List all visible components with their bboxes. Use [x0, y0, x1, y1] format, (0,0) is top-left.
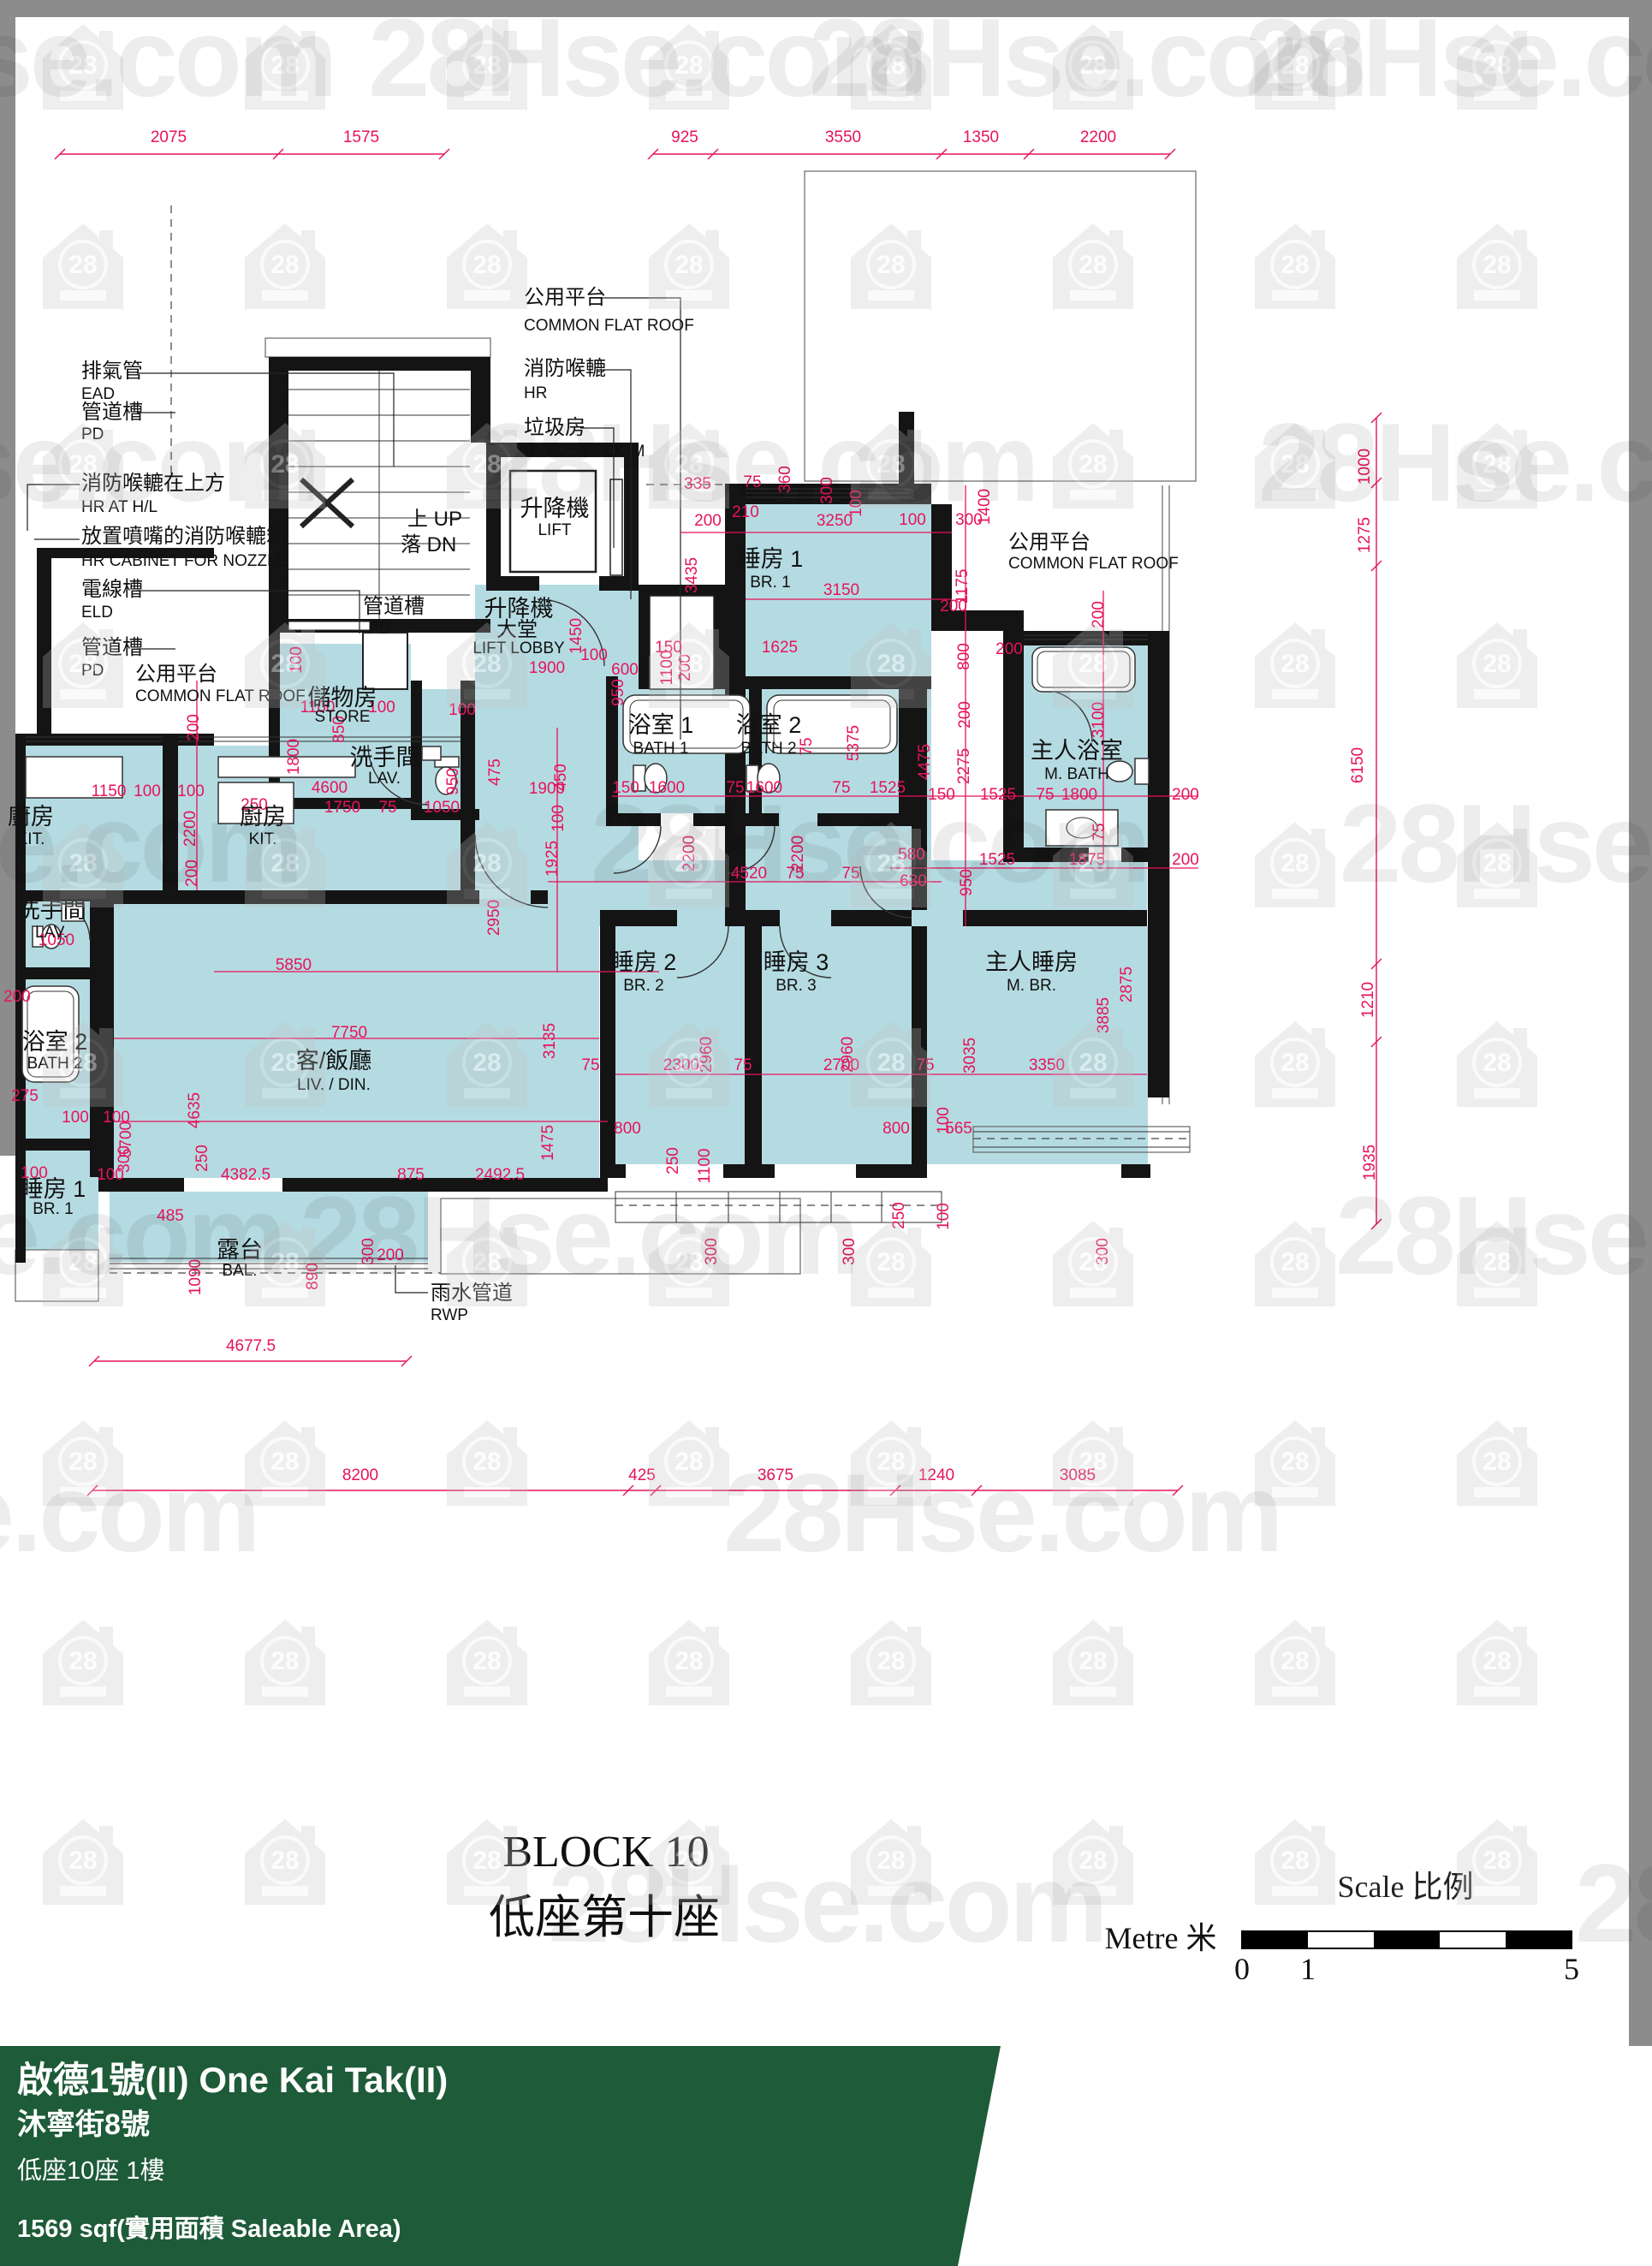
room-zh: 睡房 1: [738, 546, 804, 572]
ann-en: HR CABINET FOR NOZZLE: [81, 552, 287, 570]
dim: 2075: [151, 128, 187, 146]
watermark-icon-number: 28: [1079, 650, 1107, 678]
dim: 75: [378, 799, 396, 817]
sheet-right-strip: [1629, 17, 1652, 2046]
room-zh: 主人浴室: [1031, 738, 1123, 764]
dim: 200: [1172, 851, 1199, 869]
watermark-icon-number: 28: [674, 1647, 703, 1675]
info-banner-green: 啟德1號(II) One Kai Tak(II) 沐寧街8號 低座10座 1樓 …: [0, 2046, 1652, 2266]
room-en: BATH 1: [633, 740, 688, 758]
dim: 75: [734, 1056, 752, 1074]
watermark-icon-number: 28: [270, 1647, 299, 1675]
scale-0: 0: [1234, 1952, 1250, 1986]
watermark-icon-number: 28: [270, 1049, 299, 1077]
watermark-text: 28Hse.com: [1258, 400, 1652, 525]
dim: 2875: [1118, 966, 1136, 1002]
ann-zh: 放置噴嘴的消防喉轆箱: [81, 525, 287, 548]
dim: 250: [193, 1145, 211, 1172]
dim: 100: [62, 1109, 89, 1127]
room-en: BR. 2: [623, 977, 664, 995]
ann-zh: 公用平台: [135, 663, 217, 686]
room-en: STORE: [314, 708, 370, 726]
dim: 1210: [1359, 982, 1377, 1018]
dim: 475: [486, 758, 504, 786]
watermark-icon-number: 28: [1079, 1647, 1107, 1675]
watermark-icon-number: 28: [68, 650, 97, 678]
dim: 3135: [541, 1023, 559, 1059]
dim: 250: [664, 1147, 682, 1175]
watermark-text: 28Hse.com: [0, 781, 300, 906]
watermark-text: 28Hse.com: [591, 781, 1148, 906]
dim: 3035: [961, 1038, 979, 1074]
dim: 275: [11, 1087, 39, 1105]
dim: 925: [671, 128, 698, 146]
watermark-icon-number: 28: [1483, 1847, 1511, 1875]
dim: 200: [956, 701, 974, 729]
watermark-text: 28Hse.com: [1575, 1841, 1652, 1966]
dim: 950: [609, 679, 627, 706]
watermark-icon-number: 28: [877, 1248, 905, 1276]
dim: 1350: [963, 128, 999, 146]
dim: 450: [552, 764, 570, 791]
ann-zh: 排氣管: [81, 360, 143, 383]
dim: 200: [185, 714, 203, 741]
watermark-icon-number: 28: [270, 1448, 299, 1476]
room-zh: 洗手間: [350, 745, 419, 770]
watermark-icon-number: 28: [877, 1647, 905, 1675]
estate-address: 沐寧街8號: [17, 2101, 150, 2143]
ann-zh: 管道槽: [363, 595, 425, 618]
room-zh: 睡房 3: [764, 949, 829, 975]
watermark-icon-number: 28: [1079, 1248, 1107, 1276]
dim: 1750: [324, 799, 360, 817]
watermark-icon-number: 28: [1483, 1647, 1511, 1675]
dim: 1575: [343, 128, 379, 146]
watermark-text: 28Hse.com: [0, 400, 318, 525]
dim: 8200: [342, 1466, 378, 1484]
info-banner: 啟德1號(II) One Kai Tak(II) 沐寧街8號 低座10座 1樓 …: [0, 2046, 1652, 2266]
dim: 100: [935, 1203, 953, 1230]
scale-unit: Metre 米: [1105, 1921, 1217, 1955]
room-zh: 浴室 2: [736, 712, 802, 738]
watermark-icon-number: 28: [472, 1647, 501, 1675]
dim: 1800: [285, 739, 303, 775]
estate-area: 1569 sqf(實用面積 Saleable Area): [17, 2209, 401, 2245]
watermark-icon-number: 28: [1483, 1049, 1511, 1077]
watermark-icon-number: 28: [270, 1847, 299, 1875]
dim: 100: [550, 805, 568, 832]
watermark-icon-number: 28: [1281, 650, 1309, 678]
watermark-icon-number: 28: [1281, 1847, 1309, 1875]
dim: 1900: [529, 659, 565, 677]
dim: 6150: [1349, 747, 1367, 783]
ann-zh: 公用平台: [524, 286, 606, 309]
watermark-icon-number: 28: [1281, 1647, 1309, 1675]
watermark-text: 28Hse.com: [1340, 781, 1652, 906]
watermark-text: 28Hse.com: [300, 1173, 857, 1298]
watermark-text: 28Hse.com: [1245, 0, 1652, 120]
room-en: LAV.: [368, 770, 401, 788]
scale-1: 1: [1300, 1952, 1316, 1986]
watermark-text: 28Hse.com: [1335, 1173, 1652, 1298]
dim: 5850: [276, 956, 312, 974]
dim: 75: [798, 737, 816, 755]
watermark-icon-number: 28: [472, 1847, 501, 1875]
dim: 200: [3, 988, 31, 1006]
watermark-text: 28Hse.com: [0, 1450, 258, 1575]
watermark-icon-number: 28: [674, 1049, 703, 1077]
watermark-icon-number: 28: [1281, 1448, 1309, 1476]
room-zh: 升降機: [484, 596, 554, 622]
watermark-icon-number: 28: [68, 1049, 97, 1077]
ann-en: PD: [368, 620, 390, 638]
ann-zh: 落 DN: [401, 533, 456, 556]
dim: 2200: [1080, 128, 1116, 146]
watermark-icon-number: 28: [1079, 450, 1107, 479]
watermark-text: 28Hse.com: [0, 0, 335, 120]
room-en: BR. 1: [750, 574, 791, 592]
watermark-icon-number: 28: [1079, 1049, 1107, 1077]
room-zh: 浴室 1: [628, 712, 694, 738]
ann-zh: 消防喉轆: [524, 357, 606, 380]
watermark-icon-number: 28: [674, 251, 703, 279]
watermark-icon-number: 28: [270, 650, 299, 678]
watermark-icon-number: 28: [472, 650, 501, 678]
dim: 4677.5: [226, 1337, 276, 1355]
watermark-icon-number: 28: [1483, 251, 1511, 279]
ann-en: ELD: [81, 604, 113, 622]
dim: 1625: [762, 639, 798, 657]
watermark-icon-number: 28: [68, 1647, 97, 1675]
dim: 200: [940, 598, 967, 616]
ann-zh: 公用平台: [1008, 531, 1090, 554]
watermark-icon-number: 28: [877, 1049, 905, 1077]
ann-en: COMMON FLAT ROOF: [524, 317, 694, 335]
dim: 100: [580, 646, 608, 664]
dim: 4600: [312, 779, 348, 797]
dim: 4635: [186, 1092, 204, 1128]
floorplan-page: 2075157592535501350220011501001004600190…: [0, 0, 1652, 2266]
ann-zh: 上 UP: [407, 508, 462, 531]
sheet-left-strip: [0, 17, 15, 1156]
watermark-icon-number: 28: [472, 1448, 501, 1476]
watermark-icon-number: 28: [1281, 251, 1309, 279]
watermark-icon-number: 28: [877, 251, 905, 279]
dim: 800: [882, 1120, 910, 1138]
watermark-icon-number: 28: [1483, 650, 1511, 678]
room-zh: 睡房 2: [611, 949, 677, 975]
dim: 1475: [539, 1125, 557, 1161]
watermark-icon-number: 28: [68, 251, 97, 279]
dim: 5375: [845, 725, 863, 761]
dim: 4475: [916, 744, 934, 780]
dim: 2275: [955, 748, 973, 784]
watermark-text: 28Hse.com: [548, 1841, 1105, 1966]
ann-en: COMMON FLAT ROOF: [1008, 555, 1179, 573]
dim: 800: [955, 643, 973, 670]
watermark-icon-number: 28: [674, 650, 703, 678]
dim: 3435: [683, 557, 701, 593]
dim: 3550: [825, 128, 861, 146]
room-en: BATH 2: [740, 740, 796, 758]
room-en: BR. 3: [775, 977, 817, 995]
room-zh: 主人睡房: [985, 949, 1078, 975]
dim: 1050: [424, 799, 460, 817]
dim: 800: [614, 1120, 641, 1138]
watermark-icon-number: 28: [674, 1448, 703, 1476]
watermark-icon-number: 28: [1281, 849, 1309, 877]
watermark-icon-number: 28: [1483, 1448, 1511, 1476]
dim: 3150: [823, 581, 859, 599]
watermark-icon-number: 28: [270, 251, 299, 279]
ann-zh: 電線槽: [81, 578, 143, 601]
dim: 200: [1172, 786, 1199, 804]
dim: 1925: [544, 841, 562, 877]
scale-title: Scale 比例: [1338, 1870, 1474, 1904]
dim: 7750: [331, 1024, 367, 1042]
watermark-text: 28Hse.com: [723, 1450, 1281, 1575]
watermark-icon-number: 28: [472, 1049, 501, 1077]
watermark-icon-number: 28: [1281, 1248, 1309, 1276]
watermark-text: 28Hse.com: [0, 1173, 283, 1298]
dim: 600: [611, 661, 639, 679]
estate-block-floor: 低座10座 1樓: [17, 2150, 164, 2186]
watermark-icon-number: 28: [472, 849, 501, 877]
floorplan-drawing: 2075157592535501350220011501001004600190…: [0, 0, 1652, 2266]
dim: 300: [116, 1145, 134, 1173]
room-en: M. BR.: [1007, 977, 1056, 995]
watermark-icon-number: 28: [472, 251, 501, 279]
estate-title: 啟德1號(II) One Kai Tak(II): [17, 2051, 448, 2103]
ann-en: RWP: [431, 1306, 468, 1324]
watermark-text: 28Hse.com: [479, 400, 1037, 525]
dim: 75: [581, 1056, 599, 1074]
watermark-icon-number: 28: [1281, 1049, 1309, 1077]
dim: 100: [935, 1107, 953, 1134]
watermark-icon-number: 28: [1079, 251, 1107, 279]
dim: 200: [995, 640, 1023, 658]
room-en: LAV.: [35, 924, 68, 942]
dim: 950: [444, 768, 462, 795]
watermark-icon-number: 28: [877, 650, 905, 678]
watermark-icon-number: 28: [68, 1847, 97, 1875]
